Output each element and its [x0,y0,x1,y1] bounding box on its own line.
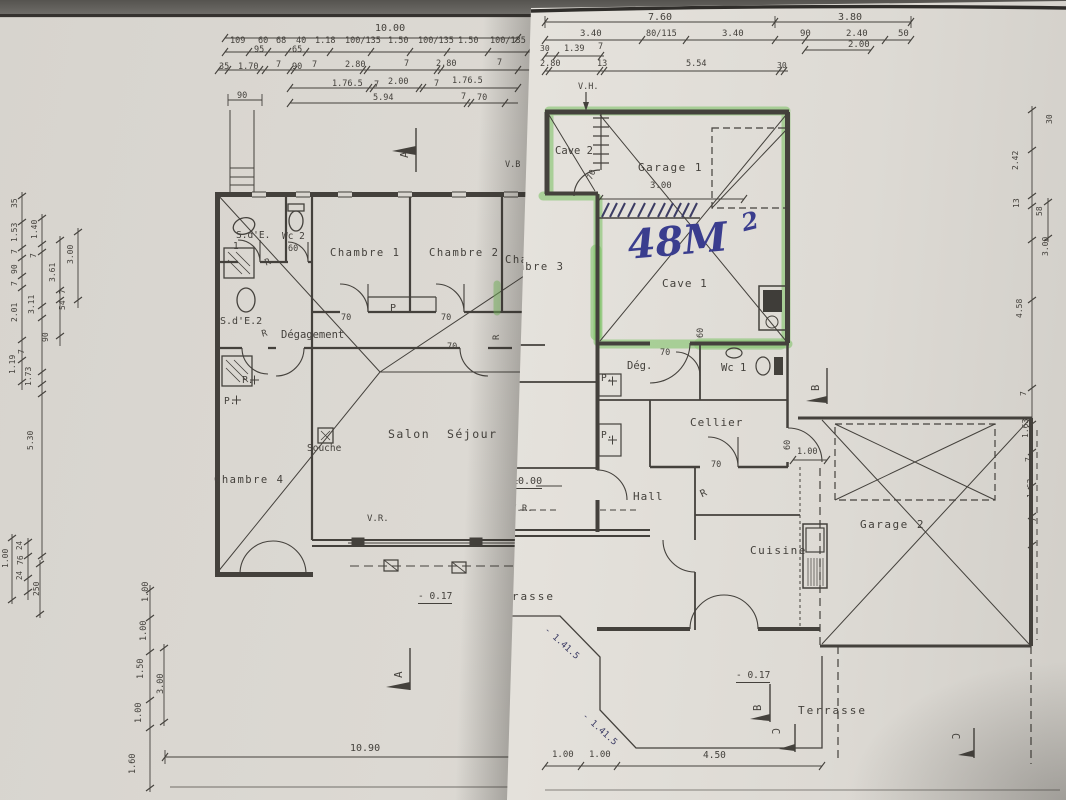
note-placard: P [390,304,396,314]
dim: 7 [461,93,466,102]
dim: 30 [540,45,550,53]
dim-v: 7 [1025,457,1033,462]
dim-v: 2.42 [1012,151,1020,170]
dim-door: 60 [697,328,706,338]
dim: 4.50 [703,751,726,761]
dim-door: 70 [341,314,351,323]
level: - 0.17 [736,671,770,683]
dim-v: 90 [11,264,19,274]
dim: 7 [276,61,281,70]
dim: 100/135 [418,37,454,46]
dim: 2.00 [848,41,870,50]
room-sde1: S.d'E. [236,231,270,241]
section-a: A [393,671,404,678]
dim-v: 2.01 [11,303,19,322]
room-cave1: Cave 1 [662,278,708,289]
dim-v: 54 [59,300,67,310]
note-placard: P. [601,374,612,384]
dim-v: 3.00 [1042,237,1050,256]
dim: 3.40 [722,30,744,39]
dim: 7 [434,80,439,89]
dim-v: 1.50 [137,659,146,679]
room-cave2: Cave 2 [555,146,593,157]
dim: 95 [254,46,264,55]
room-wc2: Wc 2 [282,232,305,242]
room-chambre1: Chambre 1 [330,248,400,259]
note-placard: P. [601,431,612,441]
dim: 3.00 [650,182,672,191]
dim-v: 1.00 [142,582,151,602]
dim: 35 [219,63,229,72]
dim: 13 [597,60,607,69]
dim-v: 90 [42,332,50,342]
room-garage1: Garage 1 [638,162,703,173]
dim: 90 [292,63,302,72]
dim: 2.80 [436,60,456,69]
note-vr: V.R. [367,515,389,524]
dim-v: 3.61 [49,263,57,282]
dim: 100/135 [345,37,381,46]
dim: 1.00 [797,448,817,457]
room-sde1: 1 [233,242,239,252]
dim-v: 3.00 [157,674,166,694]
note-placard: P. [224,397,235,407]
dim: 7 [374,81,379,90]
dim-bottom: 10.90 [350,744,380,754]
room-chambre4: Chambre 4 [214,475,284,486]
dim: 7 [312,61,317,70]
dim-overall: 3.80 [838,13,862,23]
dim-v: 4.58 [1016,299,1024,318]
dim-door: 70 [711,461,721,470]
dim-door: 70 [447,343,457,352]
dim: 5.94 [373,94,393,103]
note-souche: Souche [307,444,341,454]
dim-v: 30 [1046,114,1054,124]
dim: 90 [237,92,247,101]
dim: 109 [230,37,245,46]
dim-v: 7 [59,289,67,294]
dim: 1.70 [238,63,258,72]
photo-of-floor-plans: 10.0010960956840651.18100/1351.50100/135… [0,0,1066,800]
dim: 7 [598,43,603,52]
dim: 2.00 [388,78,408,87]
dim-v: 3.00 [67,245,75,264]
section-c: C [770,728,781,734]
dim-v: 250 [33,582,41,596]
dim-v: 58 [1036,206,1044,216]
dim: 2.80 [540,60,560,69]
room-sde2: S.d'E.2 [220,317,262,327]
dim-v: 7 [1020,391,1028,396]
dim-v: 1.63 [1022,419,1030,438]
dim: 3.40 [580,30,602,39]
dim-v: 1.53 [11,223,19,242]
dim: 2.80 [345,61,365,70]
dim: 1.50 [388,37,408,46]
section-a: A [399,151,410,158]
dim-door: 70 [660,349,670,358]
note-vh: V.H. [578,83,598,92]
photo-corner-shadow [846,660,1066,800]
dim: 1.50 [458,37,478,46]
room-hall: Hall [633,491,664,502]
dim-v: 7 [11,281,19,286]
dim-overall: 7.60 [648,13,672,23]
dim-v: 1.00 [140,621,149,641]
note-placard: P. [242,376,253,386]
dim-v: 1.73 [25,367,33,386]
dim-v: 1.60 [129,754,138,774]
dim-v: 24 [16,571,24,580]
dim-v: 3.11 [28,295,36,314]
room-cellier: Cellier [690,417,743,428]
dim-v: 1.00 [2,549,10,568]
dim: 1.00 [589,751,611,760]
dim-door: 60 [784,440,793,450]
dim: 30 [777,62,787,70]
dim-door: 70 [441,314,451,323]
dim-v: 13 [1013,198,1021,208]
dim-overall: 10.00 [375,24,405,34]
section-b: B [753,705,764,711]
room-degagement: Dégagement [281,330,344,341]
dim-v: 5.30 [27,431,35,450]
dim-v: 7 [1030,517,1038,522]
dim: 1.18 [315,37,335,46]
dim-v: 7 [18,349,26,354]
dim-v: 1.63 [1027,479,1035,498]
dim-v: 35 [11,198,19,208]
dim: 80/115 [646,30,677,39]
dim: 1.76.5 [332,80,363,89]
dim-v: 7 [11,249,19,254]
handwritten-area: 48M [626,217,729,266]
dim: 68 [276,37,286,46]
dim-v: 24 [16,541,24,550]
dim: 1.76.5 [452,77,483,86]
dim: 2.40 [846,30,868,39]
dim: 1.39 [564,45,584,54]
room-deg: Dég. [627,361,652,372]
dim: 5.54 [686,60,706,69]
dim: 90 [800,30,811,39]
dim: 65 [292,46,302,55]
dim-door: 60 [288,245,298,254]
level: - 0.17 [418,592,452,604]
room-wc1: Wc 1 [721,363,746,374]
dim-v: 1.19 [9,355,17,374]
room-cuisine: Cuisine [750,545,807,556]
section-b: B [811,385,822,391]
dim-v: 7 [30,253,38,258]
dim: 7 [404,60,409,69]
dim-v: 1.00 [135,703,144,723]
dim: 50 [898,30,909,39]
room-garage2: Garage 2 [860,519,925,530]
dim-v: 1.40 [31,220,39,239]
dim-v: 76 [17,555,25,565]
dim: 1.00 [552,751,574,760]
